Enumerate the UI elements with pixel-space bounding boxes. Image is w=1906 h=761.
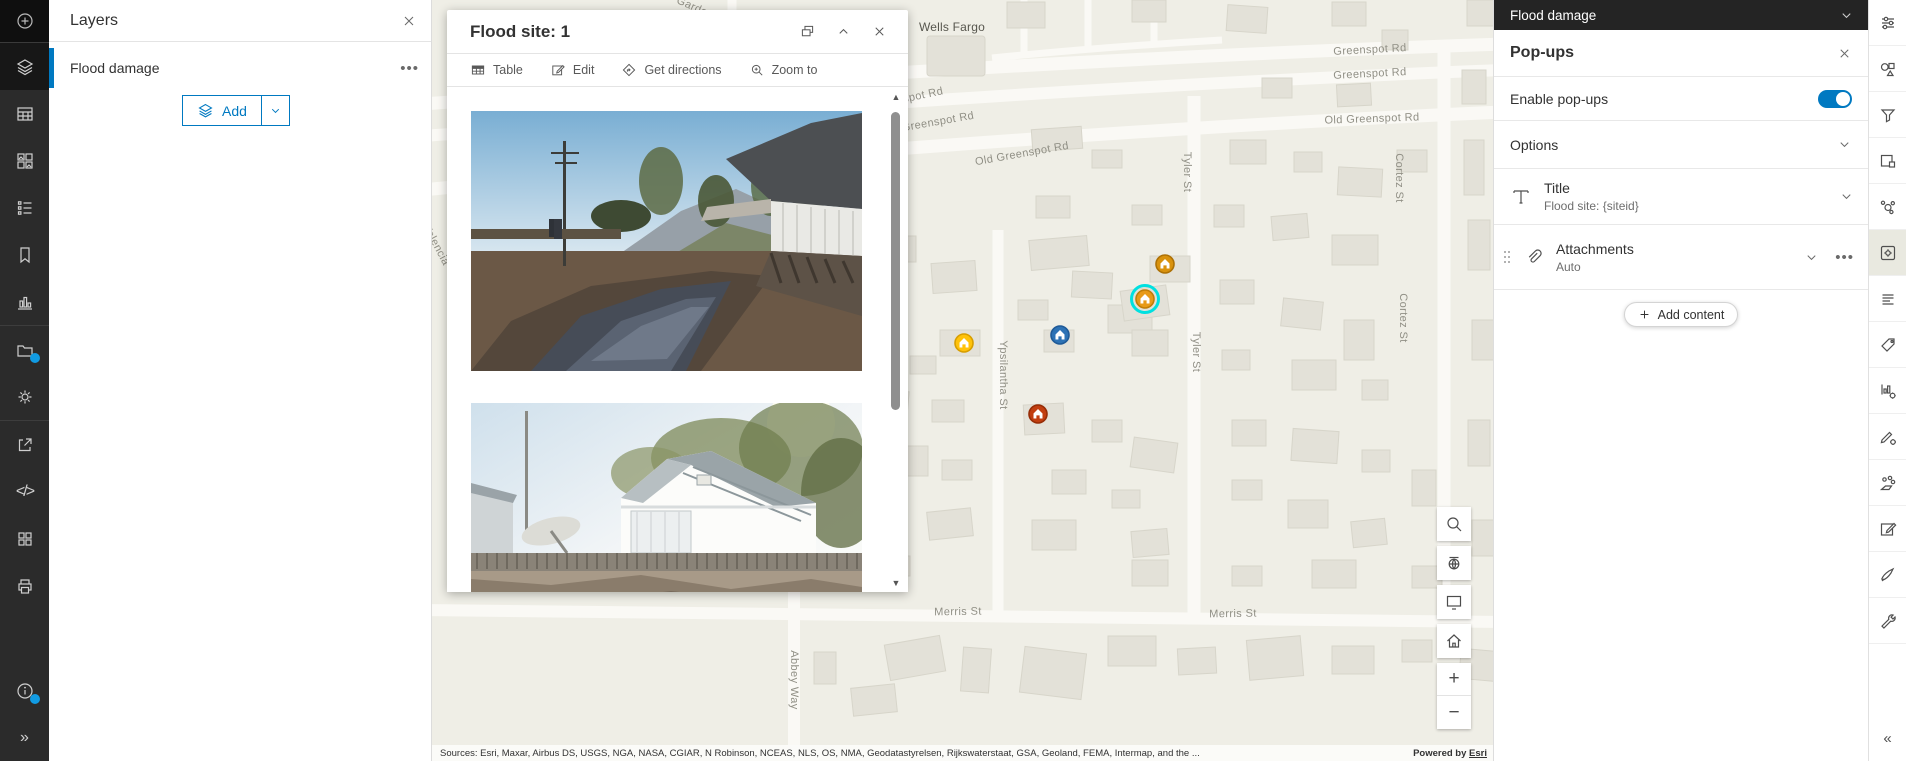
street-label: Merris St [1209,608,1257,621]
legend-icon [15,198,35,218]
expand-icon: » [20,729,29,747]
map-controls: + − [1437,507,1471,729]
tag-icon [1878,335,1898,355]
street-label: Ypsilantha St [997,340,1009,409]
dock-icon[interactable] [792,17,822,47]
popup-action-label: Get directions [644,63,721,77]
rail-basemap[interactable] [0,137,49,184]
street-label: Cortez St [1397,293,1409,342]
tool-clustering[interactable] [1869,184,1906,230]
scroll-down-icon[interactable]: ▼ [891,578,901,588]
flood-site-marker[interactable] [1028,404,1048,424]
add-content-button[interactable]: Add content [1624,302,1739,327]
zoom-out-button[interactable]: − [1437,696,1471,729]
layers-panel: Layers Flood damage ••• Add [49,0,432,761]
add-content-label: Add content [1658,308,1725,322]
scroll-up-icon[interactable]: ▲ [891,92,901,102]
zoom-in-button[interactable]: + [1437,663,1471,696]
search-button[interactable] [1437,507,1471,541]
plus-icon [1638,308,1651,321]
sketch-icon [1878,473,1898,493]
chart-gear-icon [1878,381,1898,401]
left-toolbar: </> » [0,0,49,761]
grid-table-icon [470,62,486,78]
layer-tools-rail: « [1868,0,1906,761]
street-label: Tyler St [1181,152,1193,193]
funnel-icon [1878,105,1898,125]
print-icon [15,576,35,596]
rail-add-layer[interactable] [0,0,49,43]
wrench-icon [1878,611,1898,631]
popup-action-label: Table [493,63,523,77]
street-label: Abbey Way [788,650,800,709]
rail-print[interactable] [0,562,49,609]
tool-popups[interactable] [1869,230,1906,276]
apps-icon [15,529,35,549]
sliders-icon [1878,13,1898,33]
chevron-down-icon [1804,250,1819,265]
tool-fields[interactable] [1869,138,1906,184]
collapse-popup-icon[interactable] [828,17,858,47]
rail-info[interactable] [0,667,49,714]
rail-tables[interactable] [0,90,49,137]
notification-dot [30,694,40,704]
attachment-photo-2[interactable] [471,403,862,592]
share-icon [15,435,35,455]
tool-chart-config[interactable] [1869,368,1906,414]
rail-share[interactable] [0,421,49,468]
notification-dot [30,353,40,363]
shapes-icon [1878,59,1898,79]
rail-save[interactable] [0,326,49,373]
add-layer-split-button: Add [182,95,290,126]
popups-panel-title: Pop-ups [1510,44,1574,62]
flood-site-marker[interactable] [954,333,974,353]
feature-popup: Flood site: 1 TableEditGet directionsZoo… [447,10,908,592]
layer-options-icon[interactable]: ••• [400,60,419,77]
basemap-toggle-button[interactable] [1437,546,1471,580]
rail-spacer [0,609,49,667]
edit-square-icon [550,62,566,78]
enable-popups-toggle[interactable] [1818,90,1852,108]
rail-map-properties[interactable] [0,373,49,420]
tool-labels[interactable] [1869,276,1906,322]
layers-panel-title: Layers [70,12,118,30]
tool-edit[interactable] [1869,506,1906,552]
popup-title-item[interactable]: Title Flood site: {siteid} [1494,169,1868,224]
globe-icon [1444,553,1464,573]
popups-panel-header: Pop-ups [1494,30,1868,76]
rail-embed[interactable]: </> [0,468,49,515]
chevron-down-icon [1839,8,1854,23]
popup-gear-icon [1878,243,1898,263]
tool-forms[interactable] [1869,552,1906,598]
popup-attachments [447,88,908,592]
rail-charts[interactable] [0,278,49,325]
layer-row-flood-damage[interactable]: Flood damage ••• [49,48,431,88]
rail-expand[interactable]: » [0,714,49,761]
layer-settings-panel: Flood damage Pop-ups Enable pop-ups Opti… [1493,0,1868,761]
text-lines-icon [1878,289,1898,309]
popup-action-edit[interactable]: Edit [550,62,595,78]
attachments-item-label: Attachments [1556,241,1804,257]
chevron-down-icon [1837,137,1852,152]
home-button[interactable] [1437,624,1471,658]
tool-tags[interactable] [1869,322,1906,368]
street-label: Tyler St [1190,332,1202,373]
add-button-caret[interactable] [261,96,289,125]
popups-close-icon[interactable] [1837,46,1852,61]
add-button-label: Add [222,103,247,119]
poi-label: Wells Fargo [919,20,985,34]
tool-sketch[interactable] [1869,460,1906,506]
bookmark-icon [15,245,35,265]
popup-action-label: Zoom to [772,63,818,77]
selected-layer-accent [49,48,54,88]
fields-icon [1878,151,1898,171]
layers-close-icon[interactable] [401,13,417,29]
popup-action-table[interactable]: Table [470,62,523,78]
gear-icon [15,387,35,407]
attachment-photo-1[interactable] [471,111,862,371]
layers-panel-header: Layers [49,0,431,42]
cluster-icon [1878,197,1898,217]
attachments-options-icon[interactable]: ••• [1835,249,1854,266]
tool-style-editor[interactable] [1869,414,1906,460]
tool-utilities[interactable] [1869,598,1906,644]
search-icon [1444,514,1464,534]
attribution-bar: Sources: Esri, Maxar, Airbus DS, USGS, N… [432,745,1493,761]
scroll-thumb[interactable] [891,112,900,410]
tool-styles[interactable] [1869,46,1906,92]
flood-site-marker[interactable] [1155,254,1175,274]
title-item-label: Title [1544,180,1839,196]
layers-icon [15,57,35,77]
popup-action-get-directions[interactable]: Get directions [621,62,721,78]
street-label: Cortez St [1393,153,1405,202]
title-text-icon [1510,187,1532,207]
plus-circle-icon [15,11,35,31]
flood-site-marker[interactable] [1050,325,1070,345]
popup-header: Flood site: 1 [447,10,908,54]
close-popup-icon[interactable] [864,17,894,47]
layer-name: Flood damage [70,60,160,76]
enable-popups-label: Enable pop-ups [1510,91,1608,107]
basemap-icon [15,151,35,171]
paperclip-icon [1522,247,1544,267]
collapse-rail-icon[interactable]: « [1869,715,1906,761]
rail-legend[interactable] [0,184,49,231]
zoom-control: + − [1437,663,1471,729]
popup-action-zoom-to[interactable]: Zoom to [749,62,818,78]
rail-spacer [1869,644,1906,715]
pen-gear-icon [1878,427,1898,447]
enable-popups-row: Enable pop-ups [1494,77,1868,120]
charts-icon [15,292,35,312]
powered-by-esri: Powered by Esri [1413,748,1487,759]
rail-apps[interactable] [0,515,49,562]
popup-scrollbar[interactable]: ▲ ▼ [890,92,902,588]
home-icon [1444,631,1464,651]
zoom-plus-icon [749,62,765,78]
directions-icon [621,62,637,78]
popup-action-label: Edit [573,63,595,77]
street-label: Merris St [934,606,982,619]
monitor-icon [1444,592,1464,612]
tool-properties[interactable] [1869,0,1906,46]
popup-attachments-item[interactable]: Attachments Auto ••• [1494,225,1868,289]
options-row[interactable]: Options [1494,121,1868,168]
title-item-value: Flood site: {siteid} [1544,199,1839,213]
add-button[interactable]: Add [183,96,261,125]
rail-layers[interactable] [0,43,49,90]
popup-title: Flood site: 1 [470,22,786,42]
drag-handle-icon[interactable] [1500,249,1514,265]
layer-header-title: Flood damage [1510,8,1596,23]
screen-button[interactable] [1437,585,1471,619]
tool-filter[interactable] [1869,92,1906,138]
chevron-down-icon [1839,189,1854,204]
layers-icon [197,102,214,119]
rail-bookmarks[interactable] [0,231,49,278]
attribution-sources: Sources: Esri, Maxar, Airbus DS, USGS, N… [440,748,1200,759]
options-label: Options [1510,137,1558,153]
code-icon: </> [16,483,33,501]
attachments-item-value: Auto [1556,260,1804,274]
esri-link[interactable]: Esri [1469,748,1487,759]
layer-header[interactable]: Flood damage [1494,0,1868,30]
table-icon [15,104,35,124]
pen-icon [1878,565,1898,585]
flood-site-marker-selected[interactable] [1135,289,1155,309]
edit-square-icon [1878,519,1898,539]
popup-toolbar: TableEditGet directionsZoom to [447,54,908,87]
